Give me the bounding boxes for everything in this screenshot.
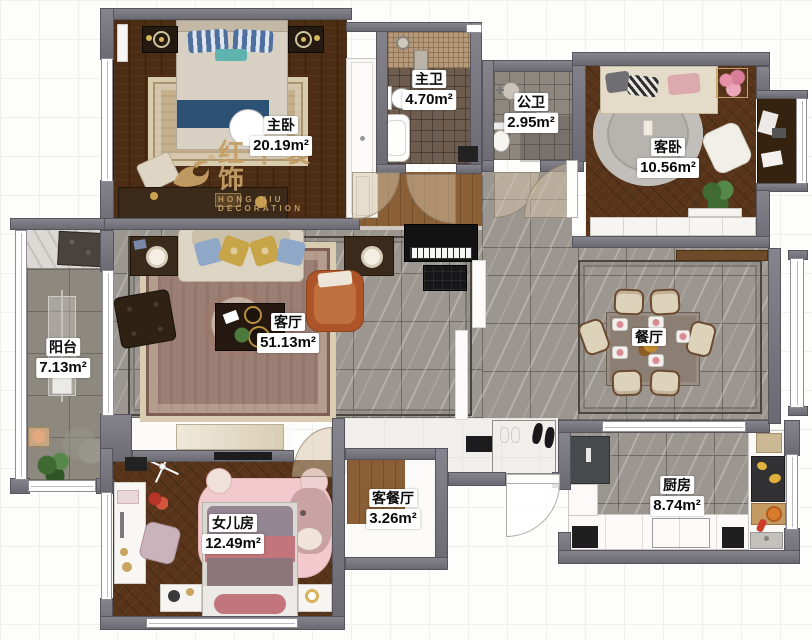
- dry-plant: [58, 420, 106, 472]
- gold-dot: [146, 35, 152, 41]
- kitchen-counter: [568, 484, 598, 516]
- pillow-pink: [667, 73, 701, 96]
- wall: [332, 418, 345, 630]
- balcony-rug: [57, 231, 103, 267]
- bolster-pink: [214, 594, 286, 614]
- wardrobe-knob: [360, 136, 365, 141]
- plate: [612, 318, 628, 331]
- door-leaf-entry: [506, 474, 560, 484]
- wall: [376, 22, 388, 174]
- dishwasher: [652, 518, 710, 548]
- wall: [100, 8, 114, 60]
- registered-icon: ®: [168, 155, 212, 198]
- wall: [10, 218, 105, 230]
- door-arc-daughter-room: [292, 427, 332, 477]
- room-name: 客卧: [651, 138, 685, 156]
- table-lamp: [361, 246, 383, 268]
- room-area: 2.95m²: [504, 113, 558, 133]
- kitchen-pass-window: [602, 421, 746, 432]
- tv-cabinet: [176, 424, 284, 450]
- appliance-black: [572, 526, 598, 548]
- room-name: 主卧: [264, 116, 298, 134]
- nightstand: [160, 584, 202, 612]
- pillow-blue: [276, 238, 306, 267]
- room-label-master-bath: 主卫 4.70m²: [402, 70, 456, 110]
- cat-rug-ear: [206, 468, 232, 494]
- candle: [643, 120, 653, 136]
- desk-pad: [117, 490, 139, 504]
- piano-bench: [423, 265, 467, 291]
- dining-chair: [614, 288, 645, 315]
- shower-head-icon: [396, 36, 410, 50]
- wall: [558, 550, 800, 564]
- wall: [346, 22, 482, 32]
- speaker-dot: [301, 37, 306, 42]
- room-name: 公卫: [514, 93, 548, 111]
- gold-decor: [186, 588, 194, 596]
- teal-throw: [215, 49, 247, 61]
- wall: [345, 557, 448, 570]
- wall: [100, 448, 113, 494]
- slipper: [500, 427, 509, 443]
- room-area: 7.13m²: [36, 358, 90, 378]
- wall: [784, 420, 800, 456]
- vegetables: [766, 506, 782, 522]
- wall: [100, 8, 352, 20]
- room-name: 餐厅: [632, 328, 666, 346]
- gold-decor: [120, 548, 128, 556]
- room-area: 51.13m²: [257, 333, 319, 353]
- blanket-mauve: [207, 558, 293, 588]
- coffee-maker: [756, 433, 782, 453]
- pillow-zebra: [627, 74, 659, 97]
- pencil: [120, 512, 124, 538]
- tv: [214, 452, 272, 460]
- wall: [456, 164, 482, 174]
- room-area: 12.49m²: [202, 534, 264, 554]
- cat-rug-muzzle: [296, 528, 322, 550]
- room-area: 10.56m²: [637, 158, 699, 178]
- radiator: [117, 24, 128, 62]
- room-area: 20.19m²: [250, 136, 312, 156]
- room-name: 女儿房: [209, 514, 257, 532]
- room-area: 8.74m²: [650, 496, 704, 516]
- balcony-seat: [32, 430, 45, 443]
- wall: [768, 248, 781, 424]
- floor-plan: ® 红牛装饰 HONG NIU DECORATION 主卧 20.19m² 主卫…: [0, 0, 812, 640]
- dining-chair: [612, 369, 643, 396]
- bay-window: [796, 98, 807, 184]
- room-label-public-bath: 公卫 2.95m²: [504, 93, 558, 133]
- faucet-icon: [764, 536, 769, 541]
- bath-window: [466, 24, 482, 33]
- slipper: [511, 427, 520, 443]
- watermark: ® 红牛装饰 HONG NIU DECORATION: [168, 150, 348, 202]
- bull-logo-icon: [168, 155, 212, 193]
- fuse-box: [466, 436, 492, 452]
- door-leaf-guest: [566, 160, 578, 218]
- wall: [572, 236, 770, 248]
- window: [15, 230, 27, 480]
- window: [790, 258, 804, 408]
- room-label-living-room: 客厅 51.13m²: [257, 313, 319, 353]
- wall: [482, 60, 584, 72]
- wall: [448, 472, 506, 486]
- window: [28, 480, 96, 492]
- dining-chair: [649, 369, 680, 397]
- pillar-cabinet: [472, 260, 486, 328]
- room-name: 主卫: [412, 70, 446, 88]
- gold-lamp: [305, 589, 319, 603]
- balcony-sliding-door: [102, 270, 114, 416]
- wall: [435, 448, 448, 570]
- fridge-handle: [586, 448, 591, 462]
- dining-cabinet: [676, 250, 768, 261]
- gold-decor: [122, 562, 132, 572]
- dining-chair: [649, 288, 680, 316]
- window: [146, 618, 298, 628]
- gold-dot: [314, 35, 320, 41]
- gold-decor: [150, 192, 158, 200]
- guest-closet: [590, 217, 756, 236]
- wall: [572, 52, 586, 162]
- bathtub-inner: [386, 120, 406, 156]
- room-name: 客餐厅: [369, 489, 417, 507]
- pillar-cabinet: [455, 330, 468, 420]
- wall: [572, 52, 770, 66]
- wall: [100, 230, 114, 272]
- room-label-hallway: 客餐厅 3.26m²: [366, 489, 420, 529]
- fan-hub: [159, 463, 166, 470]
- wall: [100, 218, 360, 230]
- toilet-bowl: [492, 130, 510, 152]
- radiator: [688, 208, 742, 217]
- ottoman: [113, 289, 177, 350]
- room-name: 厨房: [660, 476, 694, 494]
- window: [101, 58, 113, 182]
- room-label-kitchen: 厨房 8.74m²: [650, 476, 704, 516]
- flowers: [716, 68, 748, 98]
- window: [786, 454, 798, 530]
- table-plant: [233, 326, 251, 344]
- watermark-subtitle: HONG NIU DECORATION: [218, 195, 348, 213]
- window: [101, 492, 112, 600]
- wall: [10, 478, 30, 494]
- room-name: 阳台: [46, 338, 80, 356]
- wall-tv-box: [125, 457, 147, 471]
- dark-bowl: [168, 590, 180, 602]
- room-name: 客厅: [271, 313, 305, 331]
- room-area: 4.70m²: [402, 90, 456, 110]
- wall: [482, 160, 494, 172]
- piano-keys: [410, 247, 472, 259]
- room-label-balcony: 阳台 7.13m²: [36, 338, 90, 378]
- registered-mark: ®: [208, 153, 215, 163]
- duct-shaft: [458, 146, 478, 162]
- speaker-dot: [159, 37, 164, 42]
- faucet-icon: [499, 84, 501, 94]
- table-lamp: [146, 246, 168, 268]
- red-flowers: [148, 490, 168, 512]
- room-label-dining-room: 餐厅: [632, 328, 666, 346]
- desk-laptop: [772, 128, 786, 138]
- plate: [612, 346, 628, 359]
- room-area: 3.26m²: [366, 509, 420, 529]
- plate: [676, 330, 690, 343]
- door-arc-entry: [506, 483, 560, 537]
- appliance-black: [722, 527, 744, 548]
- room-label-daughter-room: 女儿房 12.49m²: [202, 514, 264, 554]
- cat-rug-eye: [300, 510, 306, 516]
- wall: [345, 448, 448, 460]
- wall: [482, 60, 494, 172]
- room-label-master-bedroom: 主卧 20.19m²: [250, 116, 312, 156]
- room-label-guest-bedroom: 客卧 10.56m²: [637, 138, 699, 178]
